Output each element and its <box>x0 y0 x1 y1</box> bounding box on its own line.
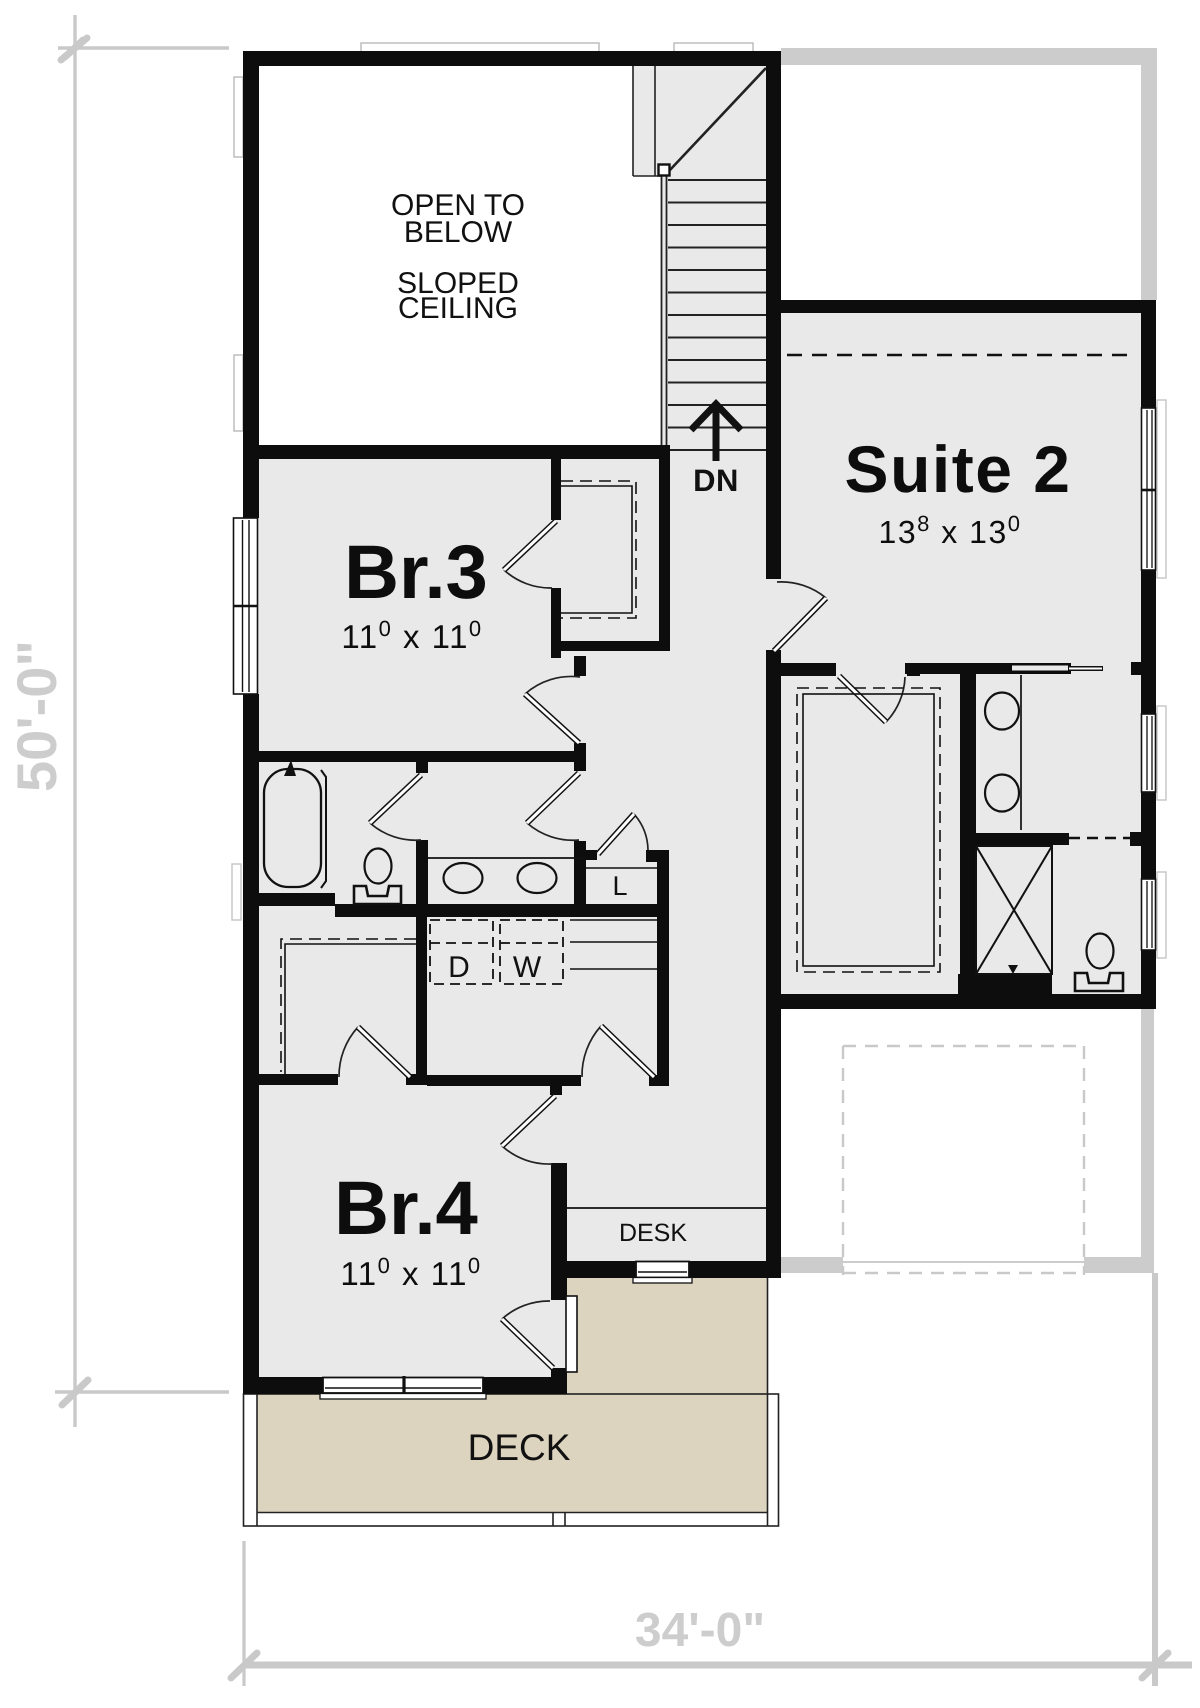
svg-text:CEILING: CEILING <box>398 292 518 325</box>
svg-text:D: D <box>448 951 470 984</box>
svg-text:Br.4: Br.4 <box>334 1166 478 1251</box>
svg-text:BELOW: BELOW <box>404 216 513 249</box>
svg-text:Suite 2: Suite 2 <box>845 432 1072 506</box>
svg-text:DESK: DESK <box>619 1219 687 1247</box>
svg-text:34'-0": 34'-0" <box>635 1604 765 1657</box>
svg-text:W: W <box>513 951 542 984</box>
svg-text:110 x 110: 110 x 110 <box>341 616 482 655</box>
svg-text:50'-0": 50'-0" <box>5 640 68 792</box>
svg-text:138 x 130: 138 x 130 <box>879 511 1022 550</box>
svg-text:Br.3: Br.3 <box>344 530 488 615</box>
svg-text:L: L <box>612 871 627 901</box>
svg-text:DN: DN <box>693 463 739 498</box>
svg-text:110 x 110: 110 x 110 <box>340 1253 481 1292</box>
svg-text:DECK: DECK <box>468 1427 571 1468</box>
